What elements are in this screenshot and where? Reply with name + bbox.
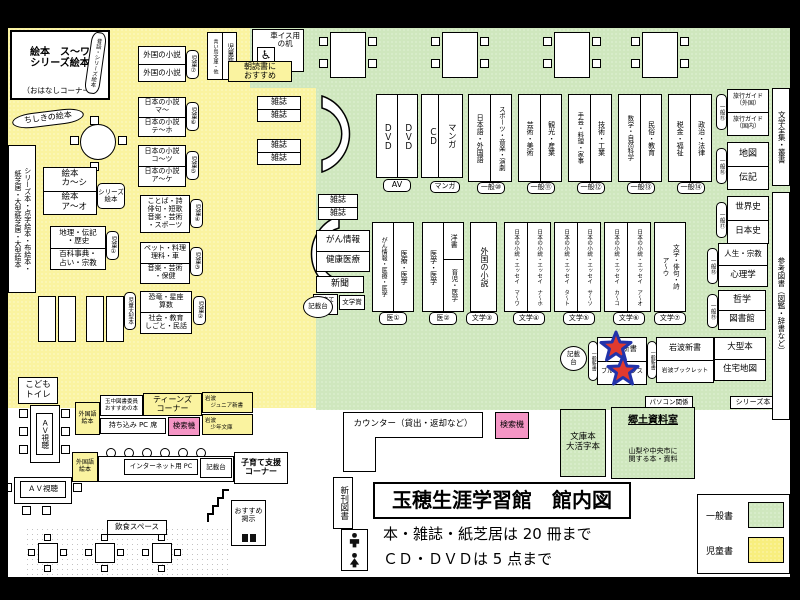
chair: [480, 37, 489, 46]
dining-table: [95, 543, 115, 563]
kids-geography-shelf: 地理・伝記 ・歴史 百科事典・ 占い・宗教: [50, 226, 106, 270]
tag-bungaku-6: 文学⑥: [613, 312, 645, 325]
shelf-label: 人生・宗教: [719, 244, 767, 265]
shelf-label: がん情報・医療・医学: [373, 223, 393, 311]
chair: [368, 59, 377, 68]
shelf-label: 芸術・美術: [519, 95, 540, 181]
shelf-label: 日本の小説 マ～: [139, 98, 185, 117]
tag-jido-5: 児童⑤: [186, 151, 199, 180]
shelf-label: スポーツ・音楽・演劇: [490, 95, 512, 181]
shelf-label: 税金・福祉: [669, 95, 690, 181]
shelf-medical-2: 医学・医学 洋書 育児・医学: [422, 222, 464, 312]
av-viewing-label: ＡＶ視聴: [36, 413, 53, 455]
chair: [101, 565, 108, 572]
chair: [19, 445, 28, 454]
shelf-label: 社会・教育 しごと・民話: [141, 312, 191, 333]
literature-collection-shelf: 文学全集・叢書: [772, 88, 790, 186]
kamishibai-tall-shelf: シリーズ本・点字絵本・布絵本・ 紙芝居・大型紙芝居・大型絵本: [8, 145, 36, 293]
shelf-label: 健康医療: [317, 251, 369, 272]
tag-general-16: 一般⑯: [716, 148, 727, 184]
tag-jido-3: 児童③: [190, 247, 203, 276]
new-books-shelf: 新刊図書: [333, 477, 353, 529]
philosophy-shelf: 哲学 図書館: [718, 290, 766, 330]
shelf-label: 日本の小説・エッセイ マ～ワ: [505, 223, 527, 311]
tag-general-18: 一般⑱: [707, 248, 718, 284]
curved-shelf: [318, 90, 358, 178]
shelf-general-12: 手芸・料理・家事 技術・工業: [568, 94, 612, 182]
shelf-label: 数学・自然科学: [619, 95, 640, 181]
chair: [592, 59, 601, 68]
tag-bungaku-5: 文学⑤: [563, 312, 595, 325]
shelf-unit: [106, 296, 124, 342]
shelf-label: 政治・法律: [690, 95, 712, 181]
iwanami-shinsho-shelf: 岩波新書 岩波ブックレット: [656, 337, 714, 383]
letterbox-top: [0, 0, 800, 28]
kids-foreign-novel-shelf: 外国の小説 外国の小説: [138, 46, 186, 82]
shelf-label: 医学・医学: [423, 223, 443, 311]
study-table: [330, 32, 366, 78]
tag-general-19: 一般⑲: [707, 294, 718, 328]
star-icon: [606, 354, 640, 387]
iwanami-junior-shinsho: 岩波 ジュニア新書: [202, 392, 253, 413]
loan-limit-note: 本・雑誌・紙芝居は 20 冊まで: [383, 523, 663, 544]
chair: [431, 59, 440, 68]
byod-pc-seats: 持ち込み PC 席: [100, 418, 166, 434]
tag-jido-7: 児童⑦: [186, 50, 199, 79]
tag-medical-1: 医①: [379, 312, 407, 325]
iwanami-shonen-bunko: 岩波 少年文庫: [202, 414, 253, 435]
chair: [73, 483, 82, 492]
morning-reading-label: 朝読書に おすすめ: [228, 61, 292, 82]
reference-books-shelf: 参考図書（図鑑・辞書など）: [772, 192, 790, 420]
shelf-label: 地図: [728, 143, 768, 166]
life-religion-shelf: 人生・宗教 心理学: [718, 243, 768, 287]
av-viewing-label: ＡＶ視聴: [20, 481, 66, 498]
tag-jido-4: 児童④: [190, 199, 203, 228]
tag-general-15: 一般⑮: [716, 94, 727, 130]
chair: [85, 549, 92, 556]
chair: [142, 549, 149, 556]
circulation-counter-leg: [343, 437, 376, 472]
picturebook-shelf: 絵本 カ～シ 絵本 ア～オ: [43, 167, 97, 215]
chair: [158, 565, 165, 572]
dining-table: [152, 543, 172, 563]
display-icon: [232, 531, 265, 545]
shelf-label: 絵本 ア～オ: [44, 191, 96, 215]
study-table: [642, 32, 678, 78]
magazine-rack: 雑誌 雑誌: [318, 194, 358, 220]
shelf-label: 雑誌: [258, 140, 300, 152]
shelf-label: 民俗・教育: [640, 95, 662, 181]
shelf-unit: [58, 296, 76, 342]
bunko-large-print-shelf: 文庫本 大活字本: [560, 409, 606, 477]
chair: [60, 549, 67, 556]
shelf-label: 外国の小説: [139, 47, 185, 64]
shelf-label: 雑誌: [258, 152, 300, 165]
shelf-label: 世界史: [728, 197, 768, 220]
shelf-label: 日本の小説 ア～ケ: [139, 166, 185, 187]
recommend-display: おすすめ 掲示: [231, 500, 266, 546]
legend-children-label: 児童書: [706, 544, 733, 557]
shelf-label: 医療・医学: [393, 223, 414, 311]
dvd-shelf: ＤＶＤ ＤＶＤ: [376, 94, 418, 178]
tag-kids-large-books: 児童大型本: [124, 292, 136, 330]
chair: [680, 37, 689, 46]
shelf-label: 日本の小説 テ～ホ: [139, 117, 185, 137]
foreign-novel-shelf: 外国の小説: [470, 222, 497, 312]
jnovel-shelf-2: 日本の小説・エッセイ タ～ト 日本の小説・エッセイ サ～ソ: [554, 222, 601, 312]
chair: [319, 59, 328, 68]
writing-stand: 記載台: [303, 296, 333, 318]
shelf-label: 恐竜・星座 算数: [141, 292, 191, 312]
teens-corner: ティーンズ コーナー: [143, 393, 202, 416]
tag-manga: マンガ: [430, 181, 460, 193]
chair: [631, 37, 640, 46]
letterbox-left: [0, 0, 8, 600]
large-books-shelf: 大型本 住宅地図: [714, 337, 766, 381]
shelf-label: 旅行ガイド （外国）: [728, 90, 768, 112]
newspaper-rack: 新聞: [316, 276, 364, 293]
shelf-label: 伝記: [728, 166, 768, 190]
shelf-label: 技術・工業: [590, 95, 612, 181]
library-floor-map: 絵本 ス～ワ シリーズ絵本 （おはなしコーナー） 昔話・シリーズ絵本 ちしきの絵…: [0, 0, 800, 600]
local-history-room: 郷土資料室 山梨や中央市に 関する本・資料: [611, 407, 695, 479]
male-icon: [342, 530, 367, 550]
shelf-unit: [86, 296, 104, 342]
circulation-counter: カウンター（貸出・返却など）: [343, 412, 483, 438]
chair: [44, 565, 51, 572]
shelf-label: 育児・医学: [444, 259, 464, 311]
female-icon: [342, 550, 367, 570]
stairs-icon: [205, 484, 231, 524]
shelf-general-11: 芸術・美術 観光・産業: [518, 94, 562, 182]
shelf-label: 住宅地図: [715, 359, 765, 381]
foreign-language-picturebooks: 外国語 絵本: [72, 452, 98, 482]
manga-shelf: マンガ: [438, 94, 463, 178]
shelf-general-10: 日本語・外国語 スポーツ・音楽・演劇: [468, 94, 512, 182]
chair: [158, 534, 165, 541]
tag-jido-6: 児童⑥: [186, 102, 199, 131]
shelf-label: 哲学: [719, 291, 765, 310]
shelf-label: ペット・料理 理科・車: [141, 243, 189, 263]
map-title: 玉穂生涯学習館 館内図: [373, 482, 631, 519]
magazine-rack: 雑誌 雑誌: [257, 139, 301, 165]
travel-guide-shelf: 旅行ガイド （外国） 旅行ガイド （国内）: [727, 89, 769, 136]
shelf-label: 地理・伝記 ・歴史: [51, 227, 105, 248]
chair: [61, 409, 70, 418]
childcare-support-corner: 子育て支援 コーナー: [234, 452, 288, 484]
chair: [680, 59, 689, 68]
shelf-label: 日本の小説・エッセイ カ～コ: [605, 223, 627, 311]
shelf-label: ＤＶＤ: [377, 95, 397, 177]
chair: [70, 136, 79, 145]
jnovel-shelf-1: 日本の小説・エッセイ マ～ワ 日本の小説・エッセイ ナ～ホ: [504, 222, 551, 312]
chair: [44, 534, 51, 541]
tag-bungaku-3: 文学③: [466, 312, 498, 325]
chair: [368, 37, 377, 46]
shelf-medical-1: がん情報・医療・医学 医療・医学: [372, 222, 414, 312]
chair: [61, 427, 70, 436]
shelf-label: ＤＶＤ: [397, 95, 418, 177]
shelf-label: 岩波新書: [657, 338, 713, 360]
shelf-label: 図書館: [719, 310, 765, 330]
tag-general-10: 一般⑩: [477, 182, 505, 194]
tag-general-14: 一般⑭: [677, 182, 705, 194]
internet-pc-label: インターネット用 PC: [124, 459, 198, 475]
tag-av: AV: [383, 179, 411, 192]
shelf-label: 日本の小説・エッセイ タ～ト: [555, 223, 577, 311]
kids-jnovel-ma-shelf: 日本の小説 マ～ 日本の小説 テ～ホ: [138, 97, 186, 137]
chair: [543, 59, 552, 68]
chair: [319, 37, 328, 46]
chair: [117, 549, 124, 556]
shelf-label: 日本語・外国語: [469, 95, 490, 181]
tag-general-13: 一般⑬: [627, 182, 655, 194]
chair: [101, 534, 108, 541]
chair: [480, 59, 489, 68]
chair: [631, 59, 640, 68]
chair: [90, 116, 99, 125]
chair: [543, 37, 552, 46]
study-table: [442, 32, 478, 78]
shelf-label: 音楽・芸術 ・保健: [141, 263, 189, 284]
toilet-sign: [341, 529, 368, 571]
shelf-unit: [38, 296, 56, 342]
tag-bungaku-4: 文学④: [513, 312, 545, 325]
shelf-label: 雑誌: [258, 97, 300, 109]
health-info-shelf: がん情報 健康医療: [316, 230, 370, 272]
shelf-label: がん情報: [317, 231, 369, 251]
shelf-label: 雑誌: [319, 207, 357, 220]
poetry-haiku-shelf: 文学・俳句・詩 ア～ウ: [654, 222, 686, 312]
chair: [42, 506, 51, 515]
shelf-general-13: 数学・自然科学 民俗・教育: [618, 94, 662, 182]
shelf-label: 絵本 カ～シ: [44, 168, 96, 191]
shelf-label: 大型本: [715, 338, 765, 359]
history-shelf: 世界史 日本史: [727, 196, 769, 244]
letterbox-bottom: [0, 577, 800, 600]
shelf-label: 日本の小説 コ～ツ: [139, 146, 185, 166]
shelf-label: 日本史: [728, 220, 768, 244]
shelf-label: 観光・産業: [540, 95, 562, 181]
search-kiosk: 検索機: [495, 412, 529, 439]
kids-kotoba-shelf: ことば・詩 俳句・短歌 音楽・芸術 ・スポーツ: [140, 195, 190, 233]
chair: [19, 427, 28, 436]
letterbox-right: [790, 0, 800, 600]
kids-toilet: こども トイレ: [18, 377, 58, 404]
writing-stand: 記載 台: [560, 346, 587, 371]
local-history-room-subtitle: 山梨や中央市に 関する本・資料: [612, 434, 694, 478]
shelf-label: 日本の小説・エッセイ ナ～ホ: [527, 223, 550, 311]
legend-general-label: 一般書: [706, 509, 733, 522]
tag-jido-2: 児童②: [193, 296, 206, 325]
shelf-label: 雑誌: [319, 195, 357, 207]
tag-bungaku-7: 文学⑦: [654, 312, 686, 325]
chair: [431, 37, 440, 46]
series-books-label: シリーズ本: [730, 396, 776, 409]
chair: [174, 549, 181, 556]
magazine-rack: 雑誌 雑誌: [257, 96, 301, 122]
school-recommended-books: 玉中図書委員 おすすめの本: [100, 395, 143, 416]
literary-award-books: 文学賞: [339, 295, 365, 310]
kids-jnovel-ko-shelf: 日本の小説 コ～ツ 日本の小説 ア～ケ: [138, 145, 186, 187]
shelf-label: 百科事典・ 占い・宗教: [51, 248, 105, 270]
shelf-label: 青い鳥文庫・他: [208, 33, 222, 79]
shelf-label: 手芸・料理・家事: [569, 95, 590, 181]
map-biography-shelf: 地図 伝記: [727, 142, 769, 190]
shelf-label: 洋書: [444, 223, 464, 259]
shelf-label: 旅行ガイド （国内）: [728, 112, 768, 135]
tag-general-17: 一般⑰: [716, 202, 727, 238]
chair: [61, 445, 70, 454]
shelf-label: 雑誌: [258, 109, 300, 122]
writing-stand: 記載台: [200, 458, 232, 478]
shelf-label: 日本の小説・エッセイ サ～ソ: [577, 223, 600, 311]
shelf-label: 岩波ブックレット: [657, 360, 713, 383]
round-table: [80, 124, 116, 160]
chair: [118, 136, 127, 145]
tag-series-ehon: シリーズ 絵本: [97, 183, 125, 209]
local-history-room-title: 郷土資料室: [612, 408, 694, 434]
eating-space-label: 飲食スペース: [107, 520, 167, 535]
shelf-label: 外国の小説: [139, 64, 185, 82]
tag-general-11: 一般⑪: [527, 182, 555, 194]
chair: [592, 37, 601, 46]
dining-table: [38, 543, 58, 563]
tag-jido-1: 児童①: [106, 231, 119, 260]
foreign-language-picturebooks: 外国語 絵本: [75, 402, 100, 435]
tag-general-12: 一般⑫: [577, 182, 605, 194]
tag-medical-2: 医②: [429, 312, 457, 325]
chair: [22, 506, 31, 515]
study-table: [554, 32, 590, 78]
shelf-label: 日本の小説・エッセイ ア～オ: [627, 223, 650, 311]
kids-dinosaur-shelf: 恐竜・星座 算数 社会・教育 しごと・民話: [140, 291, 192, 334]
chair: [19, 409, 28, 418]
shelf-label: 心理学: [719, 265, 767, 287]
shelf-general-14: 税金・福祉 政治・法律: [668, 94, 712, 182]
search-kiosk: 検索機: [168, 417, 200, 436]
legend-children-swatch: [748, 537, 784, 563]
chair: [28, 549, 35, 556]
recommend-display-label: おすすめ 掲示: [232, 501, 265, 531]
jnovel-shelf-3: 日本の小説・エッセイ カ～コ 日本の小説・エッセイ ア～オ: [604, 222, 651, 312]
kids-pet-shelf: ペット・料理 理科・車 音楽・芸術 ・保健: [140, 242, 190, 284]
legend-general-swatch: [748, 502, 784, 528]
av-limit-note: ＣＤ・ＤＶＤは 5 点まで: [383, 548, 663, 569]
